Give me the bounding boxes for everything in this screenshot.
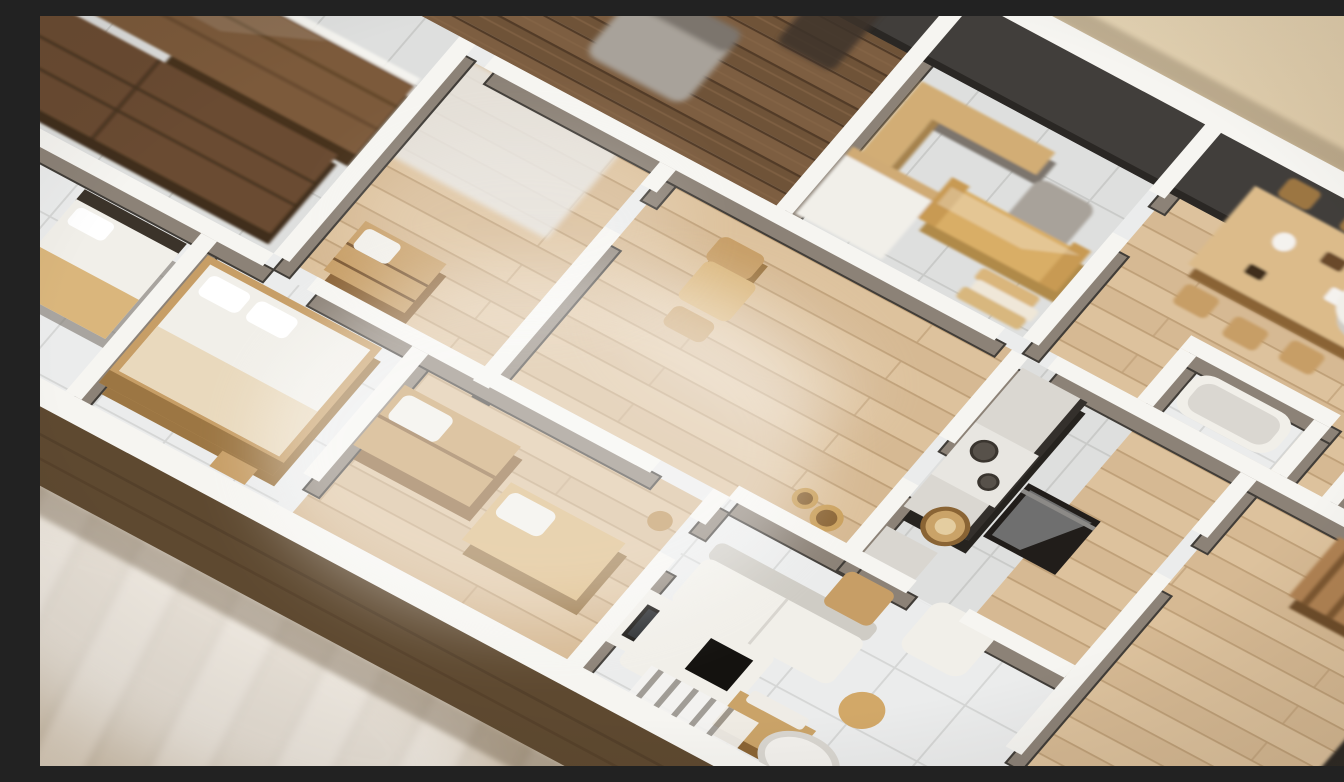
vignette (40, 16, 1344, 766)
apartment-model-render (40, 16, 1344, 766)
apartment-model-photo: Photorealistic aerial 3D cutaway model o… (40, 16, 1344, 766)
